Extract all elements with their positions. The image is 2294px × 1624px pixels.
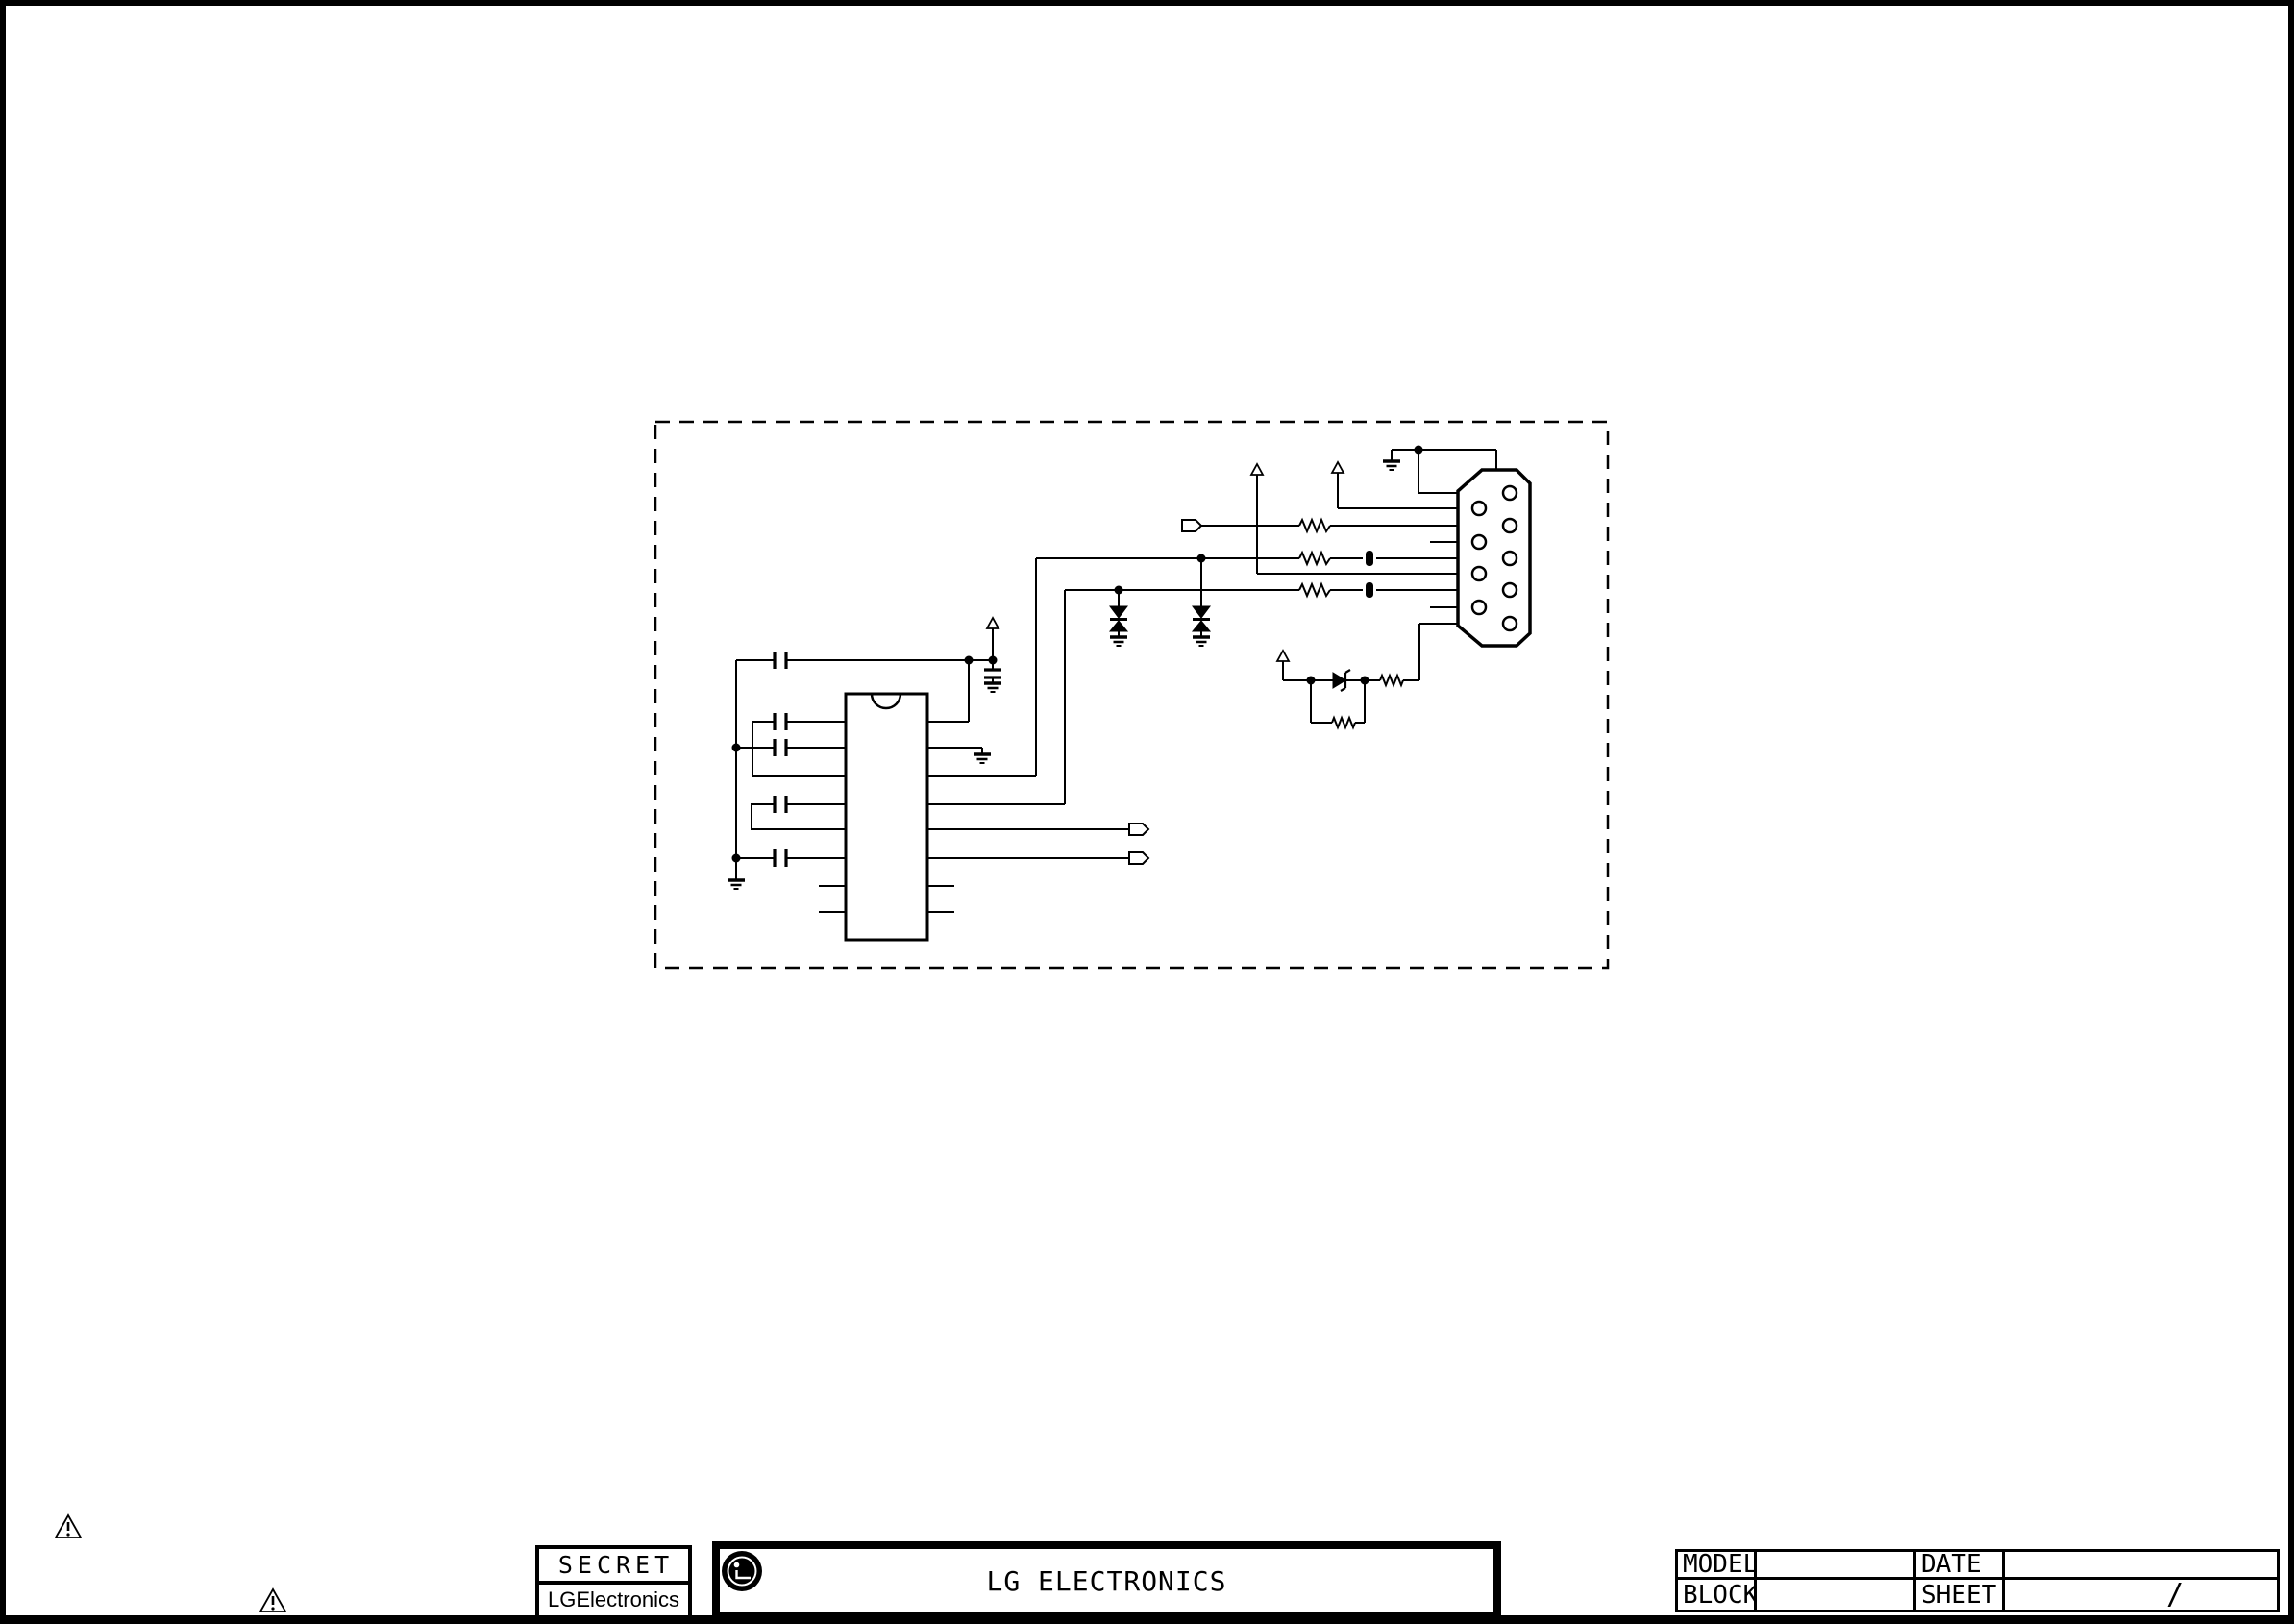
resistors	[1299, 520, 1403, 727]
ferrite-bead-icon	[1366, 582, 1373, 598]
pin-2	[1472, 502, 1486, 515]
capacitor-icon	[775, 713, 786, 730]
net-tag-icon	[1182, 520, 1201, 531]
caution-icon	[56, 1515, 81, 1538]
pin-9	[1503, 617, 1517, 630]
ground-icon	[1193, 637, 1210, 646]
ground-icon	[1110, 637, 1127, 646]
capacitor-icon	[775, 796, 786, 813]
resistor-icon	[1332, 718, 1355, 727]
lg-logo-icon	[720, 1549, 764, 1593]
date-label: DATE	[1916, 1552, 2005, 1580]
power-taps	[987, 462, 1344, 661]
classification-label: SECRET	[539, 1549, 688, 1585]
ground-icon	[974, 754, 991, 763]
model-value	[1757, 1552, 1916, 1580]
secret-stamp: SECRET LGElectronics	[535, 1545, 692, 1619]
capacitor-icon	[775, 652, 786, 669]
block-value	[1757, 1580, 1916, 1610]
schematic-sheet: SECRET LGElectronics LG ELECTRONICS MODE…	[0, 0, 2294, 1624]
capacitor-icon	[775, 849, 786, 867]
stamp-company-label: LGElectronics	[539, 1585, 688, 1615]
pin-5	[1503, 552, 1517, 565]
resistor-icon	[1299, 553, 1330, 564]
tvs-diode-icon	[1110, 606, 1127, 637]
pin-1	[1503, 486, 1517, 500]
ground-icon	[984, 683, 1001, 692]
tvs-diode-icon	[1193, 606, 1210, 637]
ground-icon	[1383, 461, 1400, 470]
power-arrow-icon	[987, 618, 999, 628]
company-name: LG ELECTRONICS	[986, 1565, 1226, 1597]
power-arrow-icon	[1332, 462, 1344, 473]
net-tag-icon	[1129, 824, 1148, 835]
resistor-icon	[1380, 676, 1403, 685]
pin-3	[1503, 519, 1517, 532]
drawing-info-table: MODEL DATE BLOCK SHEET /	[1675, 1549, 2280, 1612]
resistor-icon	[1299, 584, 1330, 596]
sheet-value: /	[2005, 1580, 2277, 1610]
sheet-label: SHEET	[1916, 1580, 2005, 1610]
tvs-diodes	[1110, 606, 1210, 637]
power-arrow-icon	[1251, 464, 1263, 475]
power-arrow-icon	[1277, 651, 1289, 661]
caution-icon	[260, 1589, 285, 1612]
capacitor-icon	[984, 670, 1001, 677]
model-label: MODEL	[1678, 1552, 1757, 1580]
block-label: BLOCK	[1678, 1580, 1757, 1610]
junction-dots	[732, 446, 1423, 863]
pin-6	[1472, 567, 1486, 580]
title-block: LG ELECTRONICS	[712, 1541, 1501, 1620]
pin-8	[1472, 601, 1486, 614]
ferrite-bead-icon	[1366, 551, 1373, 566]
ic-chip	[846, 694, 927, 940]
resistor-icon	[1299, 520, 1330, 531]
capacitor-icon	[775, 739, 786, 756]
date-value	[2005, 1552, 2277, 1580]
db9-connector	[1458, 470, 1530, 646]
pin-7	[1503, 583, 1517, 597]
circuit-schematic	[0, 0, 2294, 1624]
net-tags	[1129, 520, 1201, 864]
net-tag-icon	[1129, 852, 1148, 864]
ground-icon	[728, 880, 745, 889]
pin-4	[1472, 535, 1486, 549]
